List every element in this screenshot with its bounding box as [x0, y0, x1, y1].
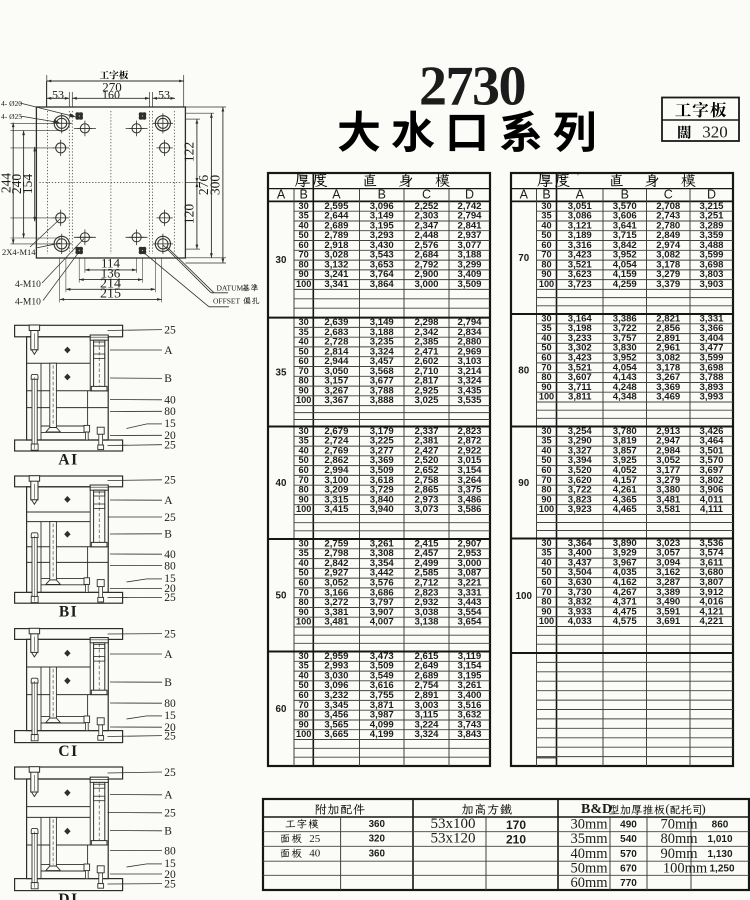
svg-text:C: C [422, 188, 431, 202]
svg-text:100: 100 [539, 616, 554, 626]
svg-text:100mm: 100mm [663, 860, 708, 876]
svg-text:4,199: 4,199 [370, 729, 394, 740]
svg-text:40: 40 [541, 333, 551, 343]
svg-text:3,324: 3,324 [414, 729, 439, 740]
svg-text:OFFSET: OFFSET [213, 297, 241, 306]
svg-text:35: 35 [299, 436, 309, 446]
svg-text:40: 40 [541, 220, 551, 230]
svg-text:3,691: 3,691 [656, 616, 681, 627]
svg-text:3,723: 3,723 [568, 279, 592, 290]
svg-text:25: 25 [164, 440, 176, 452]
svg-text:90: 90 [541, 269, 551, 279]
svg-text:A: A [164, 495, 173, 507]
svg-text:4,348: 4,348 [613, 392, 638, 403]
svg-text:90: 90 [541, 382, 551, 392]
svg-text:80: 80 [299, 259, 309, 269]
svg-text:AI: AI [58, 452, 78, 469]
svg-text:): ) [701, 801, 705, 816]
svg-text:70: 70 [541, 362, 551, 372]
svg-text:60: 60 [276, 704, 287, 715]
svg-text:30: 30 [299, 317, 309, 327]
svg-text:B: B [299, 188, 307, 202]
svg-text:3,379: 3,379 [656, 279, 680, 290]
svg-text:DI: DI [58, 891, 78, 900]
svg-text:1,010: 1,010 [707, 834, 732, 845]
svg-text:30: 30 [299, 651, 309, 661]
svg-text:(: ( [665, 801, 669, 816]
svg-text:B: B [164, 826, 172, 838]
svg-text:3,665: 3,665 [324, 729, 349, 740]
svg-text:DATUM: DATUM [217, 284, 244, 293]
svg-text:50: 50 [276, 591, 287, 602]
svg-text:40: 40 [299, 558, 309, 568]
svg-text:B&D: B&D [581, 802, 612, 817]
svg-text:90: 90 [299, 494, 309, 504]
svg-text:35: 35 [299, 548, 309, 558]
svg-text:70: 70 [541, 475, 551, 485]
svg-text:4-M10: 4-M10 [15, 298, 41, 308]
svg-text:4-M10: 4-M10 [15, 280, 41, 290]
svg-text:A: A [164, 790, 173, 802]
svg-text:210: 210 [506, 833, 526, 847]
svg-text:A: A [164, 345, 173, 357]
svg-text:70: 70 [299, 250, 309, 260]
svg-text:35: 35 [276, 367, 287, 378]
svg-text:90: 90 [299, 385, 309, 395]
svg-text:3,581: 3,581 [656, 504, 681, 515]
svg-text:2X4-M14: 2X4-M14 [2, 247, 36, 257]
svg-text:100: 100 [296, 395, 311, 405]
svg-text:35: 35 [541, 548, 551, 558]
svg-text:B: B [164, 373, 172, 385]
svg-text:25: 25 [309, 833, 321, 845]
svg-text:360: 360 [369, 848, 386, 859]
svg-text:53: 53 [158, 88, 170, 102]
svg-text:30: 30 [541, 538, 551, 548]
svg-text:4- Ø25: 4- Ø25 [1, 112, 22, 121]
svg-text:60: 60 [299, 356, 309, 366]
svg-text:50: 50 [541, 230, 551, 240]
svg-text:3,586: 3,586 [457, 504, 481, 515]
svg-text:860: 860 [712, 819, 729, 830]
svg-text:25: 25 [164, 878, 176, 890]
svg-text:25: 25 [164, 767, 176, 779]
svg-text:3,903: 3,903 [699, 279, 723, 290]
svg-text:70: 70 [541, 587, 551, 597]
svg-text:60mm: 60mm [570, 875, 608, 891]
svg-text:B: B [621, 188, 629, 202]
svg-text:B: B [378, 188, 386, 202]
svg-text:50: 50 [541, 455, 551, 465]
svg-text:35: 35 [299, 211, 309, 221]
svg-text:25: 25 [164, 475, 176, 487]
svg-text:100: 100 [539, 279, 554, 289]
svg-text:50: 50 [541, 343, 551, 353]
svg-text:70: 70 [299, 366, 309, 376]
svg-text:90: 90 [299, 607, 309, 617]
svg-text:100: 100 [539, 392, 554, 402]
svg-text:25: 25 [164, 628, 176, 640]
svg-text:3,415: 3,415 [324, 504, 349, 515]
svg-text:80: 80 [164, 845, 176, 857]
svg-text:30: 30 [276, 255, 287, 266]
svg-text:40: 40 [164, 395, 176, 407]
svg-text:C: C [664, 188, 673, 202]
svg-text:3,138: 3,138 [414, 617, 439, 628]
svg-text:53: 53 [52, 88, 64, 102]
svg-text:100: 100 [539, 504, 554, 514]
svg-text:160: 160 [102, 88, 120, 102]
svg-text:A: A [520, 188, 529, 202]
svg-text:50: 50 [299, 346, 309, 356]
svg-text:15: 15 [164, 710, 176, 722]
svg-text:3,993: 3,993 [699, 392, 723, 403]
svg-text:40: 40 [541, 445, 551, 455]
svg-text:3,341: 3,341 [324, 279, 349, 290]
svg-text:A: A [164, 649, 173, 661]
svg-text:570: 570 [620, 849, 637, 860]
svg-text:90: 90 [299, 719, 309, 729]
svg-text:3,000: 3,000 [414, 279, 438, 290]
svg-text:215: 215 [100, 287, 121, 302]
svg-text:D: D [465, 188, 474, 202]
svg-text:3,940: 3,940 [370, 504, 394, 515]
svg-text:1,130: 1,130 [707, 849, 732, 860]
svg-text:80mm: 80mm [660, 831, 698, 847]
svg-text:25: 25 [164, 808, 176, 820]
svg-text:60: 60 [541, 465, 551, 475]
svg-text:53x120: 53x120 [431, 831, 476, 847]
svg-text:40: 40 [276, 478, 287, 489]
svg-text:4,111: 4,111 [700, 504, 724, 515]
svg-text:490: 490 [620, 819, 637, 830]
svg-text:4,221: 4,221 [699, 616, 724, 627]
svg-text:15: 15 [164, 418, 176, 430]
svg-text:80: 80 [164, 698, 176, 710]
svg-text:3,073: 3,073 [414, 504, 438, 515]
svg-text:80: 80 [541, 259, 551, 269]
svg-text:670: 670 [620, 863, 637, 874]
svg-text:B: B [164, 677, 172, 689]
svg-text:3,923: 3,923 [568, 504, 592, 515]
svg-text:25: 25 [164, 324, 176, 336]
svg-text:35: 35 [299, 661, 309, 671]
svg-text:80: 80 [541, 597, 551, 607]
svg-text:1,250: 1,250 [709, 863, 734, 874]
svg-text:3,025: 3,025 [414, 395, 439, 406]
svg-text:40: 40 [541, 557, 551, 567]
svg-text:30: 30 [541, 201, 551, 211]
svg-text:40: 40 [299, 670, 309, 680]
svg-text:4,259: 4,259 [613, 279, 637, 290]
svg-text:100: 100 [296, 729, 311, 739]
svg-text:170: 170 [506, 818, 526, 832]
svg-text:B: B [164, 529, 172, 541]
svg-text:100: 100 [296, 504, 311, 514]
svg-text:A: A [576, 188, 585, 202]
svg-text:60: 60 [541, 353, 551, 363]
svg-text:25: 25 [164, 730, 176, 742]
svg-text:50: 50 [299, 230, 309, 240]
svg-text:320: 320 [369, 834, 386, 845]
svg-text:3,864: 3,864 [370, 279, 395, 290]
svg-text:70: 70 [299, 700, 309, 710]
svg-text:80: 80 [299, 485, 309, 495]
svg-text:70: 70 [518, 253, 529, 264]
svg-text:53x100: 53x100 [431, 816, 476, 832]
svg-text:90: 90 [518, 478, 529, 489]
svg-text:30mm: 30mm [570, 816, 608, 832]
svg-text:90: 90 [541, 606, 551, 616]
svg-text:30: 30 [541, 313, 551, 323]
svg-text:30: 30 [299, 201, 309, 211]
svg-text:80: 80 [299, 376, 309, 386]
svg-text:80: 80 [164, 406, 176, 418]
svg-text:3,535: 3,535 [457, 395, 482, 406]
svg-text:B: B [542, 188, 550, 202]
svg-text:50: 50 [299, 455, 309, 465]
svg-text:80: 80 [299, 710, 309, 720]
svg-text:35: 35 [299, 327, 309, 337]
svg-text:70: 70 [541, 250, 551, 260]
svg-text:4- Ø20: 4- Ø20 [1, 99, 22, 108]
svg-text:35: 35 [541, 211, 551, 221]
svg-text:40: 40 [299, 445, 309, 455]
svg-text:3,811: 3,811 [568, 392, 592, 403]
svg-text:120: 120 [181, 204, 196, 225]
svg-text:60: 60 [299, 690, 309, 700]
svg-text:154: 154 [20, 174, 35, 195]
svg-text:90: 90 [541, 494, 551, 504]
svg-text:3,843: 3,843 [457, 729, 481, 740]
svg-text:60: 60 [541, 577, 551, 587]
svg-text:40: 40 [164, 549, 176, 561]
svg-text:50: 50 [299, 680, 309, 690]
svg-text:50: 50 [299, 568, 309, 578]
svg-text:100: 100 [296, 617, 311, 627]
svg-text:360: 360 [369, 819, 386, 830]
svg-text:35mm: 35mm [570, 831, 608, 847]
svg-text:3,654: 3,654 [457, 617, 482, 628]
svg-text:770: 770 [620, 878, 637, 889]
svg-text:540: 540 [620, 834, 637, 845]
svg-text:BI: BI [59, 604, 78, 621]
svg-text:80: 80 [299, 597, 309, 607]
svg-text:D: D [707, 188, 716, 202]
svg-text:100: 100 [296, 279, 311, 289]
svg-text:60: 60 [299, 465, 309, 475]
svg-text:': ' [577, 172, 579, 183]
svg-text:70mm: 70mm [660, 816, 698, 832]
svg-text:40: 40 [299, 337, 309, 347]
svg-text:35: 35 [541, 436, 551, 446]
svg-text:320: 320 [702, 123, 728, 142]
svg-text:4,007: 4,007 [370, 617, 394, 628]
svg-text:3,469: 3,469 [656, 392, 680, 403]
svg-text:25: 25 [164, 592, 176, 604]
svg-text:CI: CI [58, 743, 78, 760]
svg-text:4,465: 4,465 [613, 504, 638, 515]
svg-text:40: 40 [299, 220, 309, 230]
svg-text:30: 30 [299, 538, 309, 548]
svg-text:122: 122 [181, 142, 196, 162]
svg-text:60: 60 [299, 578, 309, 588]
svg-text:A: A [332, 188, 341, 202]
svg-text:2730: 2730 [419, 56, 525, 118]
svg-text:100: 100 [516, 591, 533, 602]
svg-text:90: 90 [299, 269, 309, 279]
svg-text:300: 300 [207, 175, 222, 196]
svg-text:30: 30 [299, 426, 309, 436]
svg-text:25: 25 [164, 512, 176, 524]
svg-text:80: 80 [518, 366, 529, 377]
svg-text:3,509: 3,509 [457, 279, 481, 290]
svg-text:60: 60 [541, 240, 551, 250]
svg-text:80: 80 [164, 560, 176, 572]
svg-text:80: 80 [541, 372, 551, 382]
svg-text:A: A [277, 188, 286, 202]
svg-text:50: 50 [541, 567, 551, 577]
svg-text:3,367: 3,367 [324, 395, 348, 406]
svg-text:3,888: 3,888 [370, 395, 395, 406]
svg-text:60: 60 [299, 240, 309, 250]
svg-text:70: 70 [299, 475, 309, 485]
svg-text:40: 40 [309, 848, 321, 860]
svg-text:70: 70 [299, 587, 309, 597]
svg-text:30: 30 [541, 426, 551, 436]
svg-text:80: 80 [541, 485, 551, 495]
svg-text:35: 35 [541, 323, 551, 333]
svg-text:4,575: 4,575 [613, 616, 638, 627]
svg-text:3,481: 3,481 [324, 617, 349, 628]
svg-text:4,033: 4,033 [568, 616, 592, 627]
